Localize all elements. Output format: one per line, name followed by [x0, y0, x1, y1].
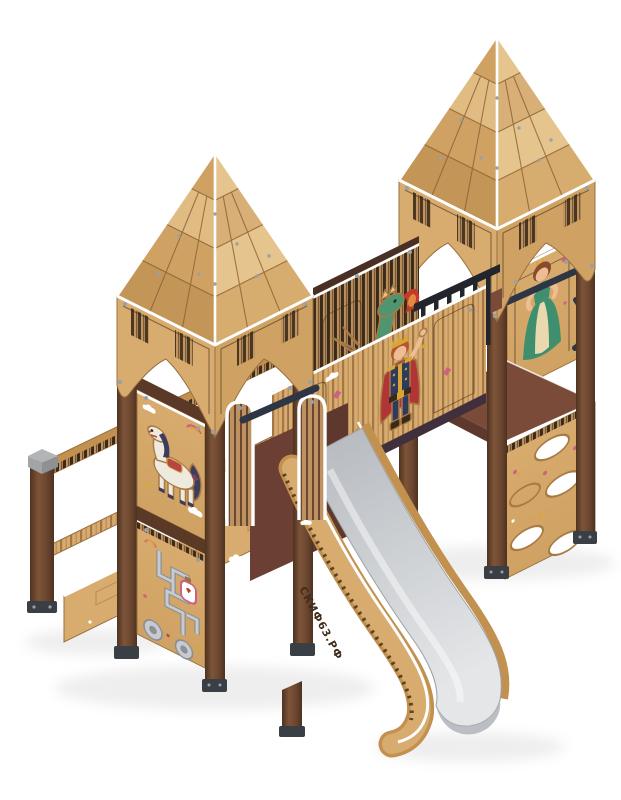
stair-post [27, 449, 58, 613]
playground-product-image: СКИФ63.РФ [0, 0, 621, 800]
playground-illustration: СКИФ63.РФ [0, 0, 621, 800]
